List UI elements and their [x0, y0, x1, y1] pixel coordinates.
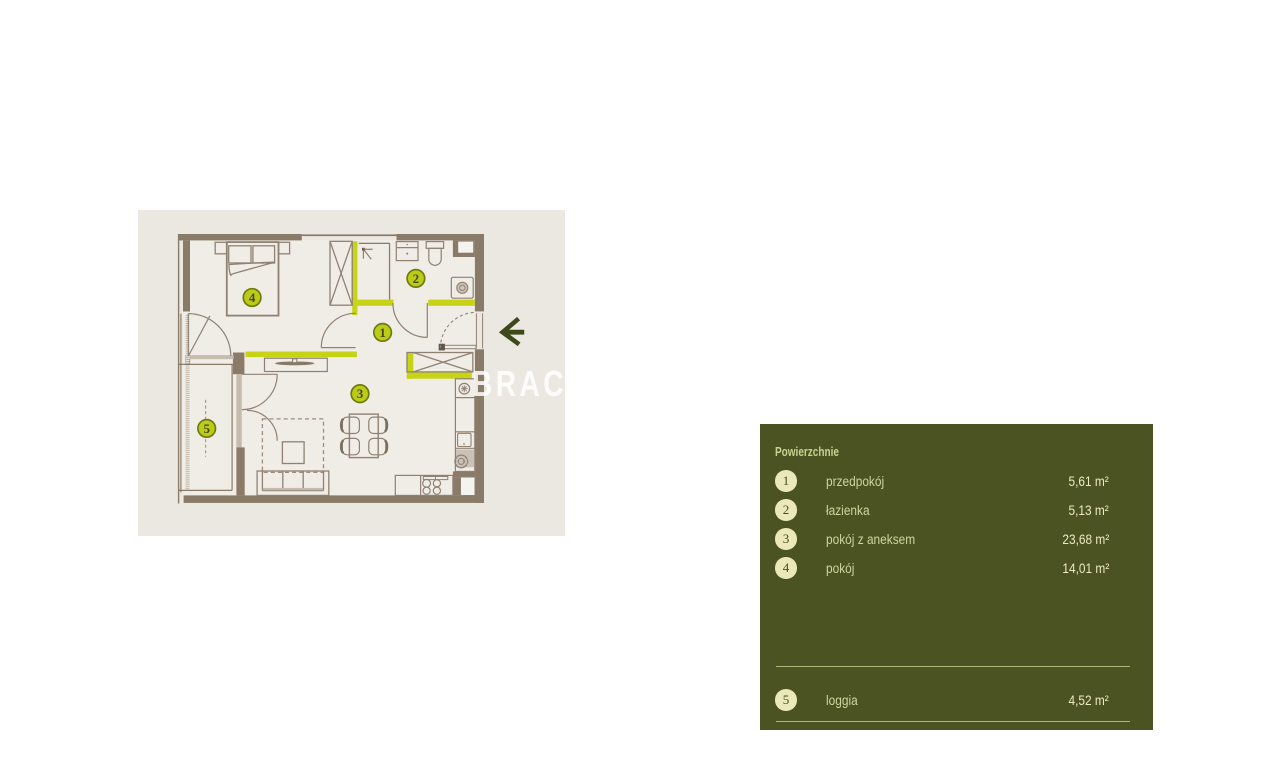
svg-text:2: 2 — [413, 271, 420, 286]
svg-text:5: 5 — [203, 421, 210, 436]
svg-text:4: 4 — [249, 290, 256, 305]
svg-text:3: 3 — [357, 386, 364, 401]
svg-text:1: 1 — [379, 325, 386, 340]
